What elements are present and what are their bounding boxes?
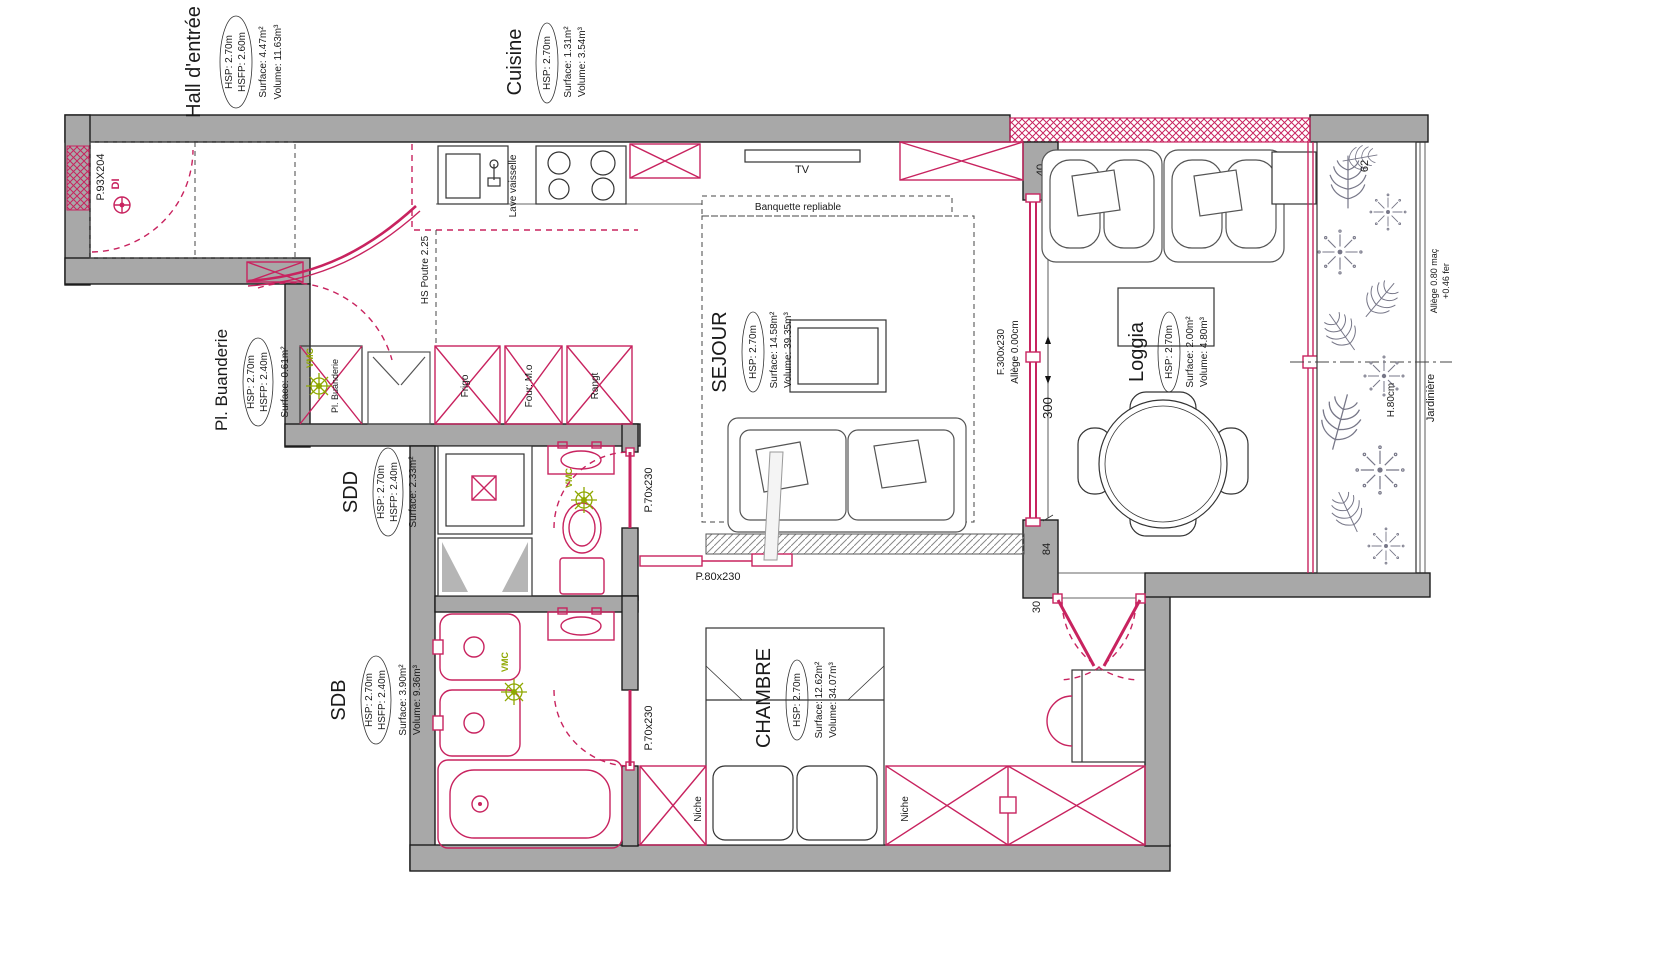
cuisine-hsp: HSP: 2.70m — [542, 36, 553, 90]
loggia-glazing — [1303, 142, 1318, 573]
sdd-hsp: HSP: 2.70m — [376, 465, 387, 519]
dining-set — [1078, 392, 1248, 536]
banquette-label: Banquette repliable — [755, 202, 842, 213]
cuisine-surface: Surface: 1.31m² — [563, 26, 574, 98]
side-table — [1272, 152, 1316, 204]
buanderie-hsfp: HSFP: 2.40m — [259, 352, 270, 412]
sdb-door-label: P.70x230 — [643, 705, 655, 750]
wall-bottom — [410, 845, 1170, 871]
vmc-label-2: VMC — [564, 468, 574, 489]
sejour-sofa — [728, 418, 966, 532]
sejour-area: P.80x230 — [640, 216, 1024, 583]
sejour-table — [790, 320, 886, 392]
sejour-name: SEJOUR — [709, 311, 731, 392]
hall-name: Hall d'entrée — [183, 6, 205, 118]
vmc-symbol-3 — [501, 679, 527, 705]
sejour-hsp: HSP: 2.70m — [748, 325, 759, 379]
sdd-name: SDD — [340, 471, 362, 513]
sdd-shelf — [438, 538, 532, 596]
stove — [536, 146, 626, 204]
oven-label: Four: M.o — [524, 364, 535, 407]
desk-chair — [1047, 696, 1072, 746]
room-label-buanderie: Pl. Buanderie HSP: 2.70m HSFP: 2.40m Sur… — [212, 329, 291, 431]
chambre-surface: Surface: 12.62m² — [814, 661, 825, 738]
fer-label: +0.46 fer — [1441, 263, 1451, 299]
cuisine-name: Cuisine — [504, 29, 526, 96]
dishwasher-label: Lave vaisselle — [508, 154, 519, 217]
french-doors — [1053, 594, 1145, 680]
entry-door-size-label: P.93X204 — [95, 154, 107, 201]
beam-label: HS Poutre 2.25 — [420, 235, 431, 304]
cuisine-volume: Volume: 3.54m³ — [577, 26, 588, 97]
vmc-symbol-2 — [571, 487, 597, 513]
sejour-surface: Surface: 14.58m² — [769, 311, 780, 388]
hall-hsp: HSP: 2.70m — [224, 35, 235, 89]
dim-30: 30 — [1031, 601, 1043, 613]
hall-volume: Volume: 11.63m³ — [273, 24, 284, 100]
floor-plan-page: P.93X204 DI — [0, 0, 1657, 972]
dim-62: 62 — [1359, 160, 1371, 172]
threshold-hatch — [706, 534, 1024, 554]
chambre-area: Niche Niche — [640, 594, 1145, 845]
washer-marks — [373, 357, 425, 385]
sdb-name: SDB — [328, 679, 350, 720]
planter-outer-edge — [1420, 142, 1425, 573]
loggia-name: Loggia — [1126, 321, 1148, 382]
sdb-washbasin-top — [548, 608, 614, 640]
window-size-label: F.300x230 — [996, 328, 1007, 375]
window-pier-bottom — [1023, 520, 1058, 598]
wall-top-left — [65, 115, 1010, 142]
loggia-sofa-1 — [1042, 150, 1162, 262]
allege-080-label: Allège 0.80 maç — [1429, 248, 1439, 313]
sdb-hsp: HSP: 2.70m — [364, 673, 375, 727]
hall-hsfp: HSFP: 2.60m — [237, 32, 248, 92]
buanderie-surface: Surface: 0.61m² — [280, 346, 291, 418]
room-label-hall: Hall d'entrée HSP: 2.70m HSFP: 2.60m Sur… — [183, 6, 284, 118]
entry-door-hatch — [67, 146, 89, 210]
loggia-surface: Surface: 2.00m² — [1185, 316, 1196, 388]
room-label-sdd: SDD HSP: 2.70m HSFP: 2.40m Surface: 2.33… — [340, 448, 419, 536]
wall-sdb-right-a — [622, 596, 638, 690]
wall-sdd-top — [285, 424, 640, 446]
dim-300: 300 — [1040, 397, 1055, 419]
shower — [438, 446, 532, 534]
buanderie-name: Pl. Buanderie — [212, 329, 231, 431]
wall-loggia-bottom — [1145, 573, 1430, 597]
toilet — [560, 503, 604, 594]
wall-top-right — [1310, 115, 1428, 142]
planter-height-label: H.80cm — [1386, 383, 1397, 417]
loggia-volume: Volume: 4.80m³ — [1199, 316, 1210, 387]
buanderie-hsp: HSP: 2.70m — [246, 355, 257, 409]
loggia-sofa-2 — [1164, 150, 1284, 262]
hall-dashed-outline — [90, 142, 295, 258]
niche-right-label: Niche — [900, 796, 911, 822]
sdd-door-label: P.70x230 — [643, 467, 655, 512]
storage-label: Rangt — [590, 372, 601, 399]
sdb-hsfp: HSFP: 2.40m — [377, 670, 388, 730]
hall-door-swing-arc — [258, 283, 392, 360]
wall-sdd-right-b — [622, 528, 638, 600]
jardiniere-label: Jardinière — [1425, 374, 1437, 422]
tv-unit — [745, 150, 860, 162]
fridge-label: Frigo — [460, 374, 471, 397]
planter-box — [1317, 142, 1416, 573]
floor-plan: P.93X204 DI — [0, 0, 1657, 972]
chambre-hsp: HSP: 2.70m — [792, 673, 803, 727]
sdb-surface: Surface: 3.90m² — [398, 664, 409, 736]
sejour-volume: Volume: 39.35m³ — [783, 312, 794, 388]
wall-chambre-right — [1145, 596, 1170, 846]
entry-door-swing-arc — [92, 150, 193, 252]
loggia-hsp: HSP: 2.70m — [1164, 325, 1175, 379]
vmc-label-1: VMC — [305, 348, 315, 369]
vmc-label-3: VMC — [500, 652, 510, 673]
wall-sdb-right-b — [622, 766, 638, 846]
tv-label: TV — [795, 164, 810, 176]
room-label-sejour: SEJOUR HSP: 2.70m Surface: 14.58m² Volum… — [709, 311, 794, 393]
loggia-openwork-wall — [1010, 118, 1310, 142]
sdb-door — [554, 690, 634, 770]
di-symbol — [114, 197, 130, 213]
sdb-volume: Volume: 9.36m³ — [412, 664, 423, 735]
chambre-volume: Volume: 34.07m³ — [828, 662, 839, 738]
room-label-cuisine: Cuisine HSP: 2.70m Surface: 1.31m² Volum… — [504, 23, 588, 103]
buanderie-area: Pl. Buanderie VMC — [300, 346, 430, 424]
kitchen-sink — [438, 146, 508, 204]
niche-left-label: Niche — [693, 796, 704, 822]
di-label: DI — [110, 179, 122, 190]
hall-surface: Surface: 4.47m² — [258, 26, 269, 98]
room-label-sdb: SDB HSP: 2.70m HSFP: 2.40m Surface: 3.90… — [328, 656, 423, 744]
window-sill-label: Allège 0.00cm — [1010, 320, 1021, 383]
chambre-name: CHAMBRE — [753, 648, 775, 748]
desk — [1072, 670, 1145, 762]
hall-area: P.93X204 DI — [90, 142, 420, 360]
dim-84: 84 — [1041, 543, 1053, 555]
upper-cabinet-right — [900, 142, 1023, 180]
niche-right — [886, 766, 1145, 845]
wall-sdd-sdb — [435, 596, 638, 612]
upper-cabinet-left — [630, 144, 700, 178]
chambre-loggia-threshold — [1058, 573, 1145, 598]
sdd-surface: Surface: 2.33m² — [408, 456, 419, 528]
sliding-door-label: P.80x230 — [695, 571, 740, 583]
sdd-hsfp: HSFP: 2.40m — [389, 462, 400, 522]
bathtub — [438, 760, 622, 848]
